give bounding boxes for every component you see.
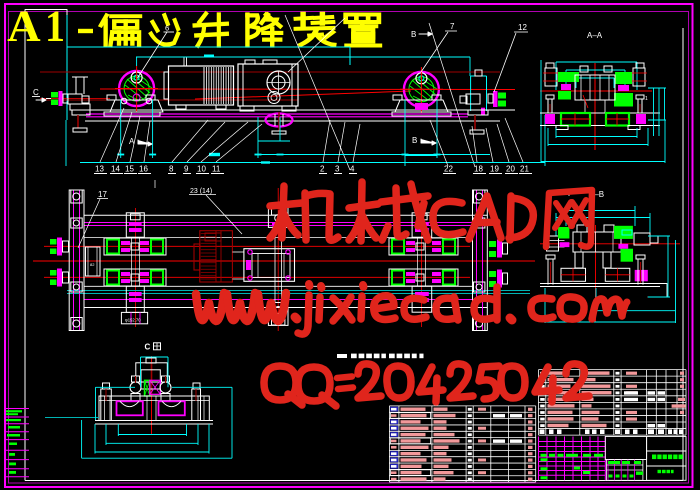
svg-text:φ152.70: φ152.70 [125, 318, 141, 323]
svg-text:82: 82 [90, 262, 95, 267]
svg-text:1: 1 [45, 2, 65, 51]
svg-text:12: 12 [518, 23, 527, 32]
svg-text:C: C [145, 343, 151, 352]
svg-text:13: 13 [95, 165, 104, 174]
svg-text:16: 16 [139, 165, 148, 174]
svg-text:B: B [412, 136, 417, 145]
svg-text:15: 15 [125, 165, 134, 174]
svg-text:C: C [33, 88, 39, 97]
svg-text:10: 10 [197, 165, 206, 174]
svg-text:A: A [7, 2, 41, 51]
svg-text:3: 3 [335, 165, 340, 174]
svg-text:7: 7 [450, 22, 455, 31]
svg-text:B: B [411, 30, 416, 39]
svg-text:18: 18 [474, 165, 483, 174]
svg-text:14: 14 [111, 165, 120, 174]
svg-text:11: 11 [212, 165, 221, 174]
svg-text:17: 17 [98, 190, 107, 199]
svg-text:20: 20 [506, 165, 515, 174]
svg-text:4: 4 [350, 165, 355, 174]
svg-text:6: 6 [165, 24, 169, 33]
svg-text:22: 22 [444, 165, 453, 174]
svg-text:19: 19 [490, 165, 499, 174]
svg-text:23 (14): 23 (14) [190, 188, 212, 195]
svg-text:21: 21 [520, 165, 529, 174]
svg-text:2: 2 [320, 165, 325, 174]
svg-text:9: 9 [184, 165, 189, 174]
svg-text:1: 1 [645, 96, 648, 102]
svg-text:8: 8 [169, 165, 174, 174]
svg-text:A–A: A–A [587, 31, 603, 40]
